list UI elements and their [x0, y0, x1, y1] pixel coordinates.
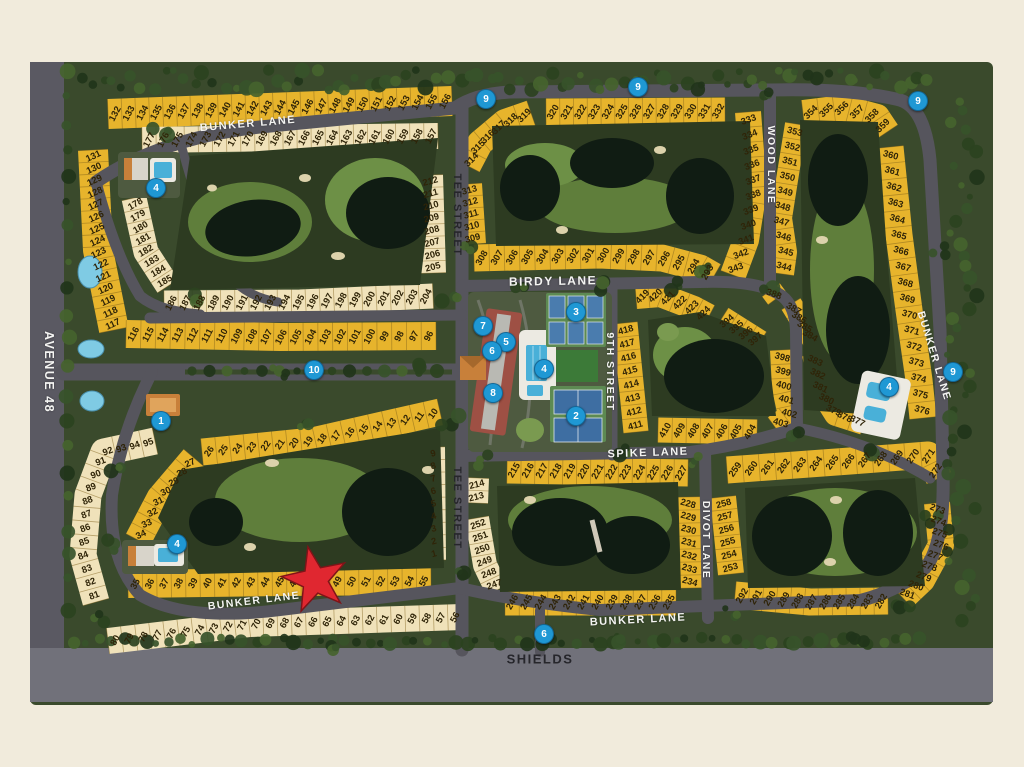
event-lawn: [556, 350, 598, 382]
site-map: 1321331341351361371381391401411421431441…: [0, 0, 1024, 767]
clubhouse-campus: [460, 292, 612, 452]
entrance-pond-south: [80, 391, 104, 411]
south-center-course: [497, 482, 681, 592]
avenue-48-road: [30, 62, 64, 702]
gatehouse: [146, 394, 180, 416]
tennis-courts: [550, 386, 606, 442]
shields-road: [30, 648, 993, 702]
sw-satellite-pool: [122, 540, 188, 574]
nw-satellite-pool: [118, 152, 180, 198]
entrance-pond-north: [78, 340, 104, 358]
nw-course: [170, 138, 438, 290]
north-center-course: [492, 121, 754, 246]
pickleball-courts: [546, 293, 606, 347]
terrain-svg: 1321331341351361371381391401411421431441…: [0, 0, 1024, 767]
se-course: [745, 478, 925, 588]
putting-green: [516, 418, 544, 442]
